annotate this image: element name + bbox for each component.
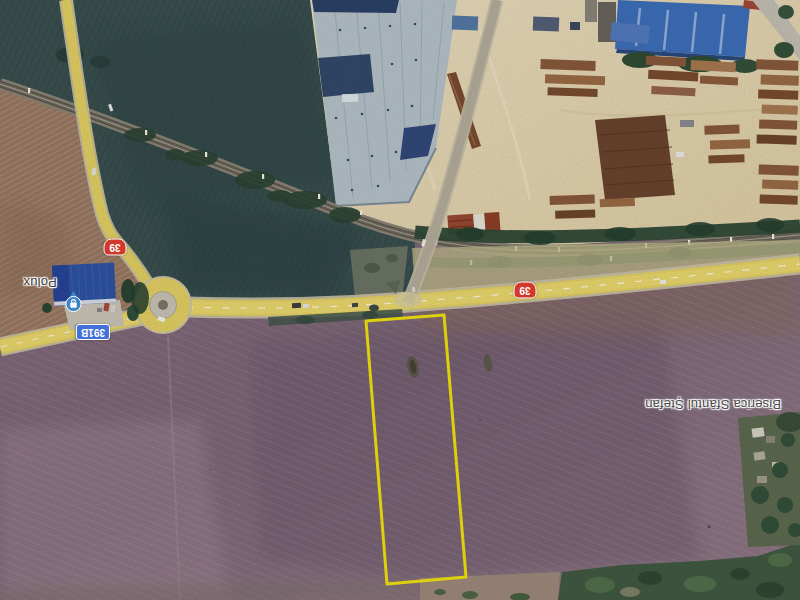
store-label[interactable]: Polux	[23, 275, 57, 290]
grain-overlay	[0, 0, 800, 600]
road-badge-39-east: 39	[514, 282, 537, 299]
church-label[interactable]: Biserica Sfântul Ștefan	[645, 397, 781, 412]
satellite-imagery	[0, 0, 800, 600]
map-canvas[interactable]: Polux 391B 39 39 Biserica Sfântul Ștefan	[0, 0, 800, 600]
road-badge-391b: 391B	[76, 324, 110, 340]
road-badge-39-west: 39	[104, 239, 127, 256]
